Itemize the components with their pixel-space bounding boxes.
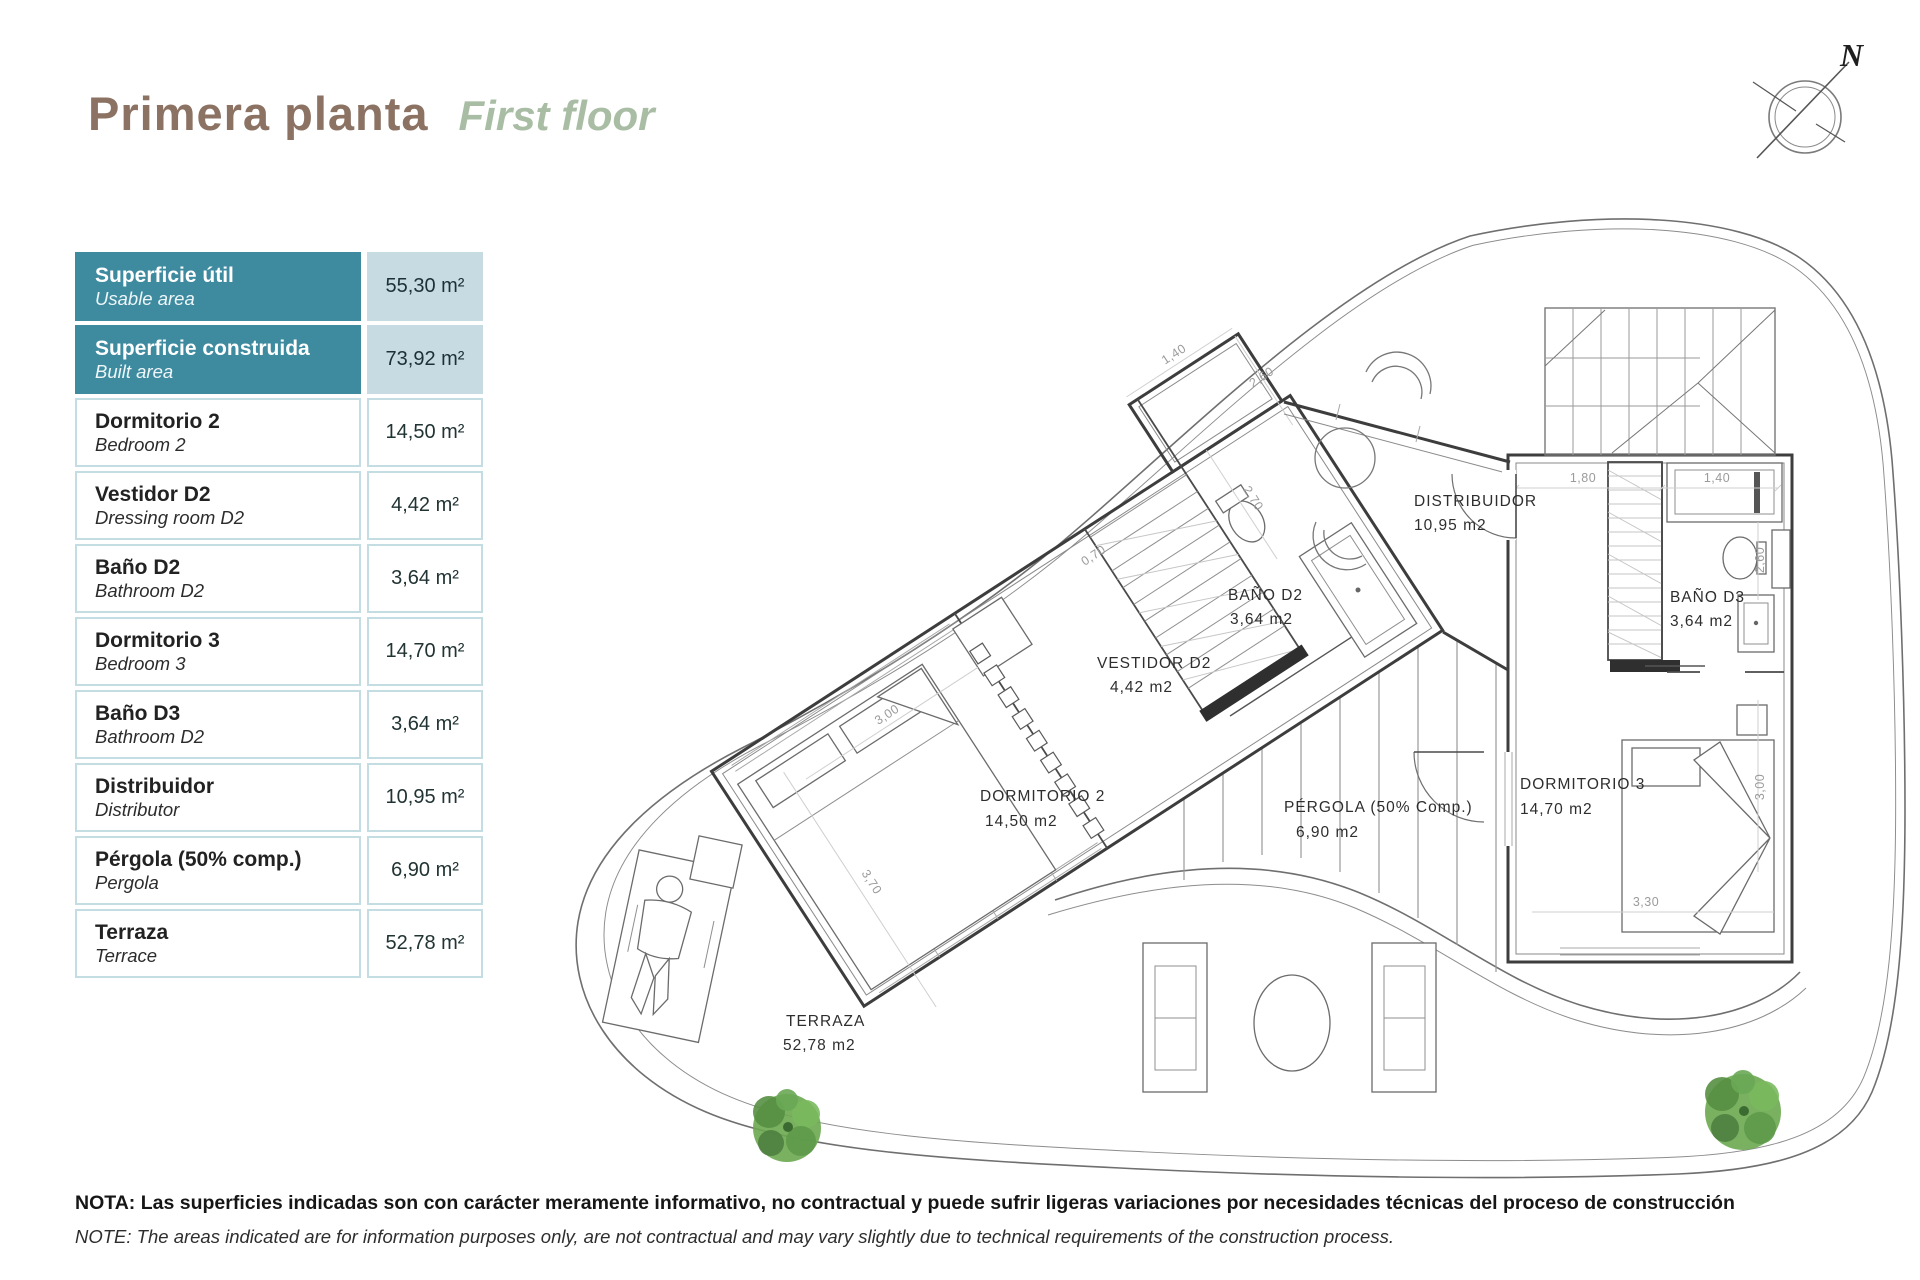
room-label: PÉRGOLA (50% Comp.) bbox=[1284, 799, 1473, 816]
room-label: DISTRIBUIDOR bbox=[1414, 493, 1537, 510]
compass-north-label: N bbox=[1839, 37, 1865, 73]
room-label: DORMITORIO 3 bbox=[1520, 776, 1645, 793]
bathroom-d3-fixtures bbox=[1667, 463, 1790, 672]
room-label: DORMITORIO 2 bbox=[980, 788, 1105, 805]
floor-plan: 1,40 2,60 0,70 3,00 3,70 2,70 bbox=[0, 0, 1920, 1280]
oval-table bbox=[1254, 975, 1330, 1071]
terrace-seating bbox=[1143, 943, 1436, 1092]
room-label: BAÑO D2 bbox=[1228, 587, 1303, 604]
dim-label: 0,70 bbox=[1079, 542, 1109, 568]
roof-plan bbox=[1545, 308, 1775, 455]
room-area: 14,50 m2 bbox=[985, 813, 1058, 830]
side-table bbox=[690, 836, 742, 888]
right-wing: 1,80 1,40 2,60 3,00 3,30 bbox=[1502, 308, 1792, 962]
room-area: 10,95 m2 bbox=[1414, 517, 1487, 534]
footer-note: NOTA: Las superficies indicadas son con … bbox=[75, 1192, 1865, 1248]
dim-label: 3,00 bbox=[1753, 774, 1767, 800]
room-area: 3,64 m2 bbox=[1670, 613, 1733, 630]
room-label: TERRAZA bbox=[786, 1013, 865, 1030]
dim-label: 3,30 bbox=[1633, 895, 1659, 909]
room-area: 14,70 m2 bbox=[1520, 801, 1593, 818]
bathroom-d2-fixtures bbox=[1215, 446, 1417, 680]
note-english: NOTE: The areas indicated are for inform… bbox=[75, 1226, 1865, 1248]
top-box bbox=[1129, 334, 1282, 472]
plant bbox=[753, 1089, 821, 1162]
pergola-wall bbox=[1443, 632, 1508, 670]
note-spanish: NOTA: Las superficies indicadas son con … bbox=[75, 1192, 1865, 1215]
room-area: 52,78 m2 bbox=[783, 1037, 856, 1054]
plant bbox=[1705, 1070, 1781, 1150]
room-label: BAÑO D3 bbox=[1670, 589, 1745, 606]
compass-icon: N bbox=[1753, 37, 1865, 158]
wardrobe bbox=[953, 597, 1032, 676]
dim-label: 1,80 bbox=[1570, 471, 1596, 485]
room-label: VESTIDOR D2 bbox=[1097, 655, 1211, 672]
nightstand bbox=[1737, 705, 1767, 735]
dim-label: 2,60 bbox=[1753, 547, 1767, 573]
room-area: 4,42 m2 bbox=[1110, 679, 1173, 696]
stair-handrail bbox=[1199, 644, 1308, 721]
room-area: 3,64 m2 bbox=[1230, 611, 1293, 628]
dim-label: 1,40 bbox=[1704, 471, 1730, 485]
dim-label: 1,40 bbox=[1159, 341, 1189, 367]
room-area: 6,90 m2 bbox=[1296, 824, 1359, 841]
